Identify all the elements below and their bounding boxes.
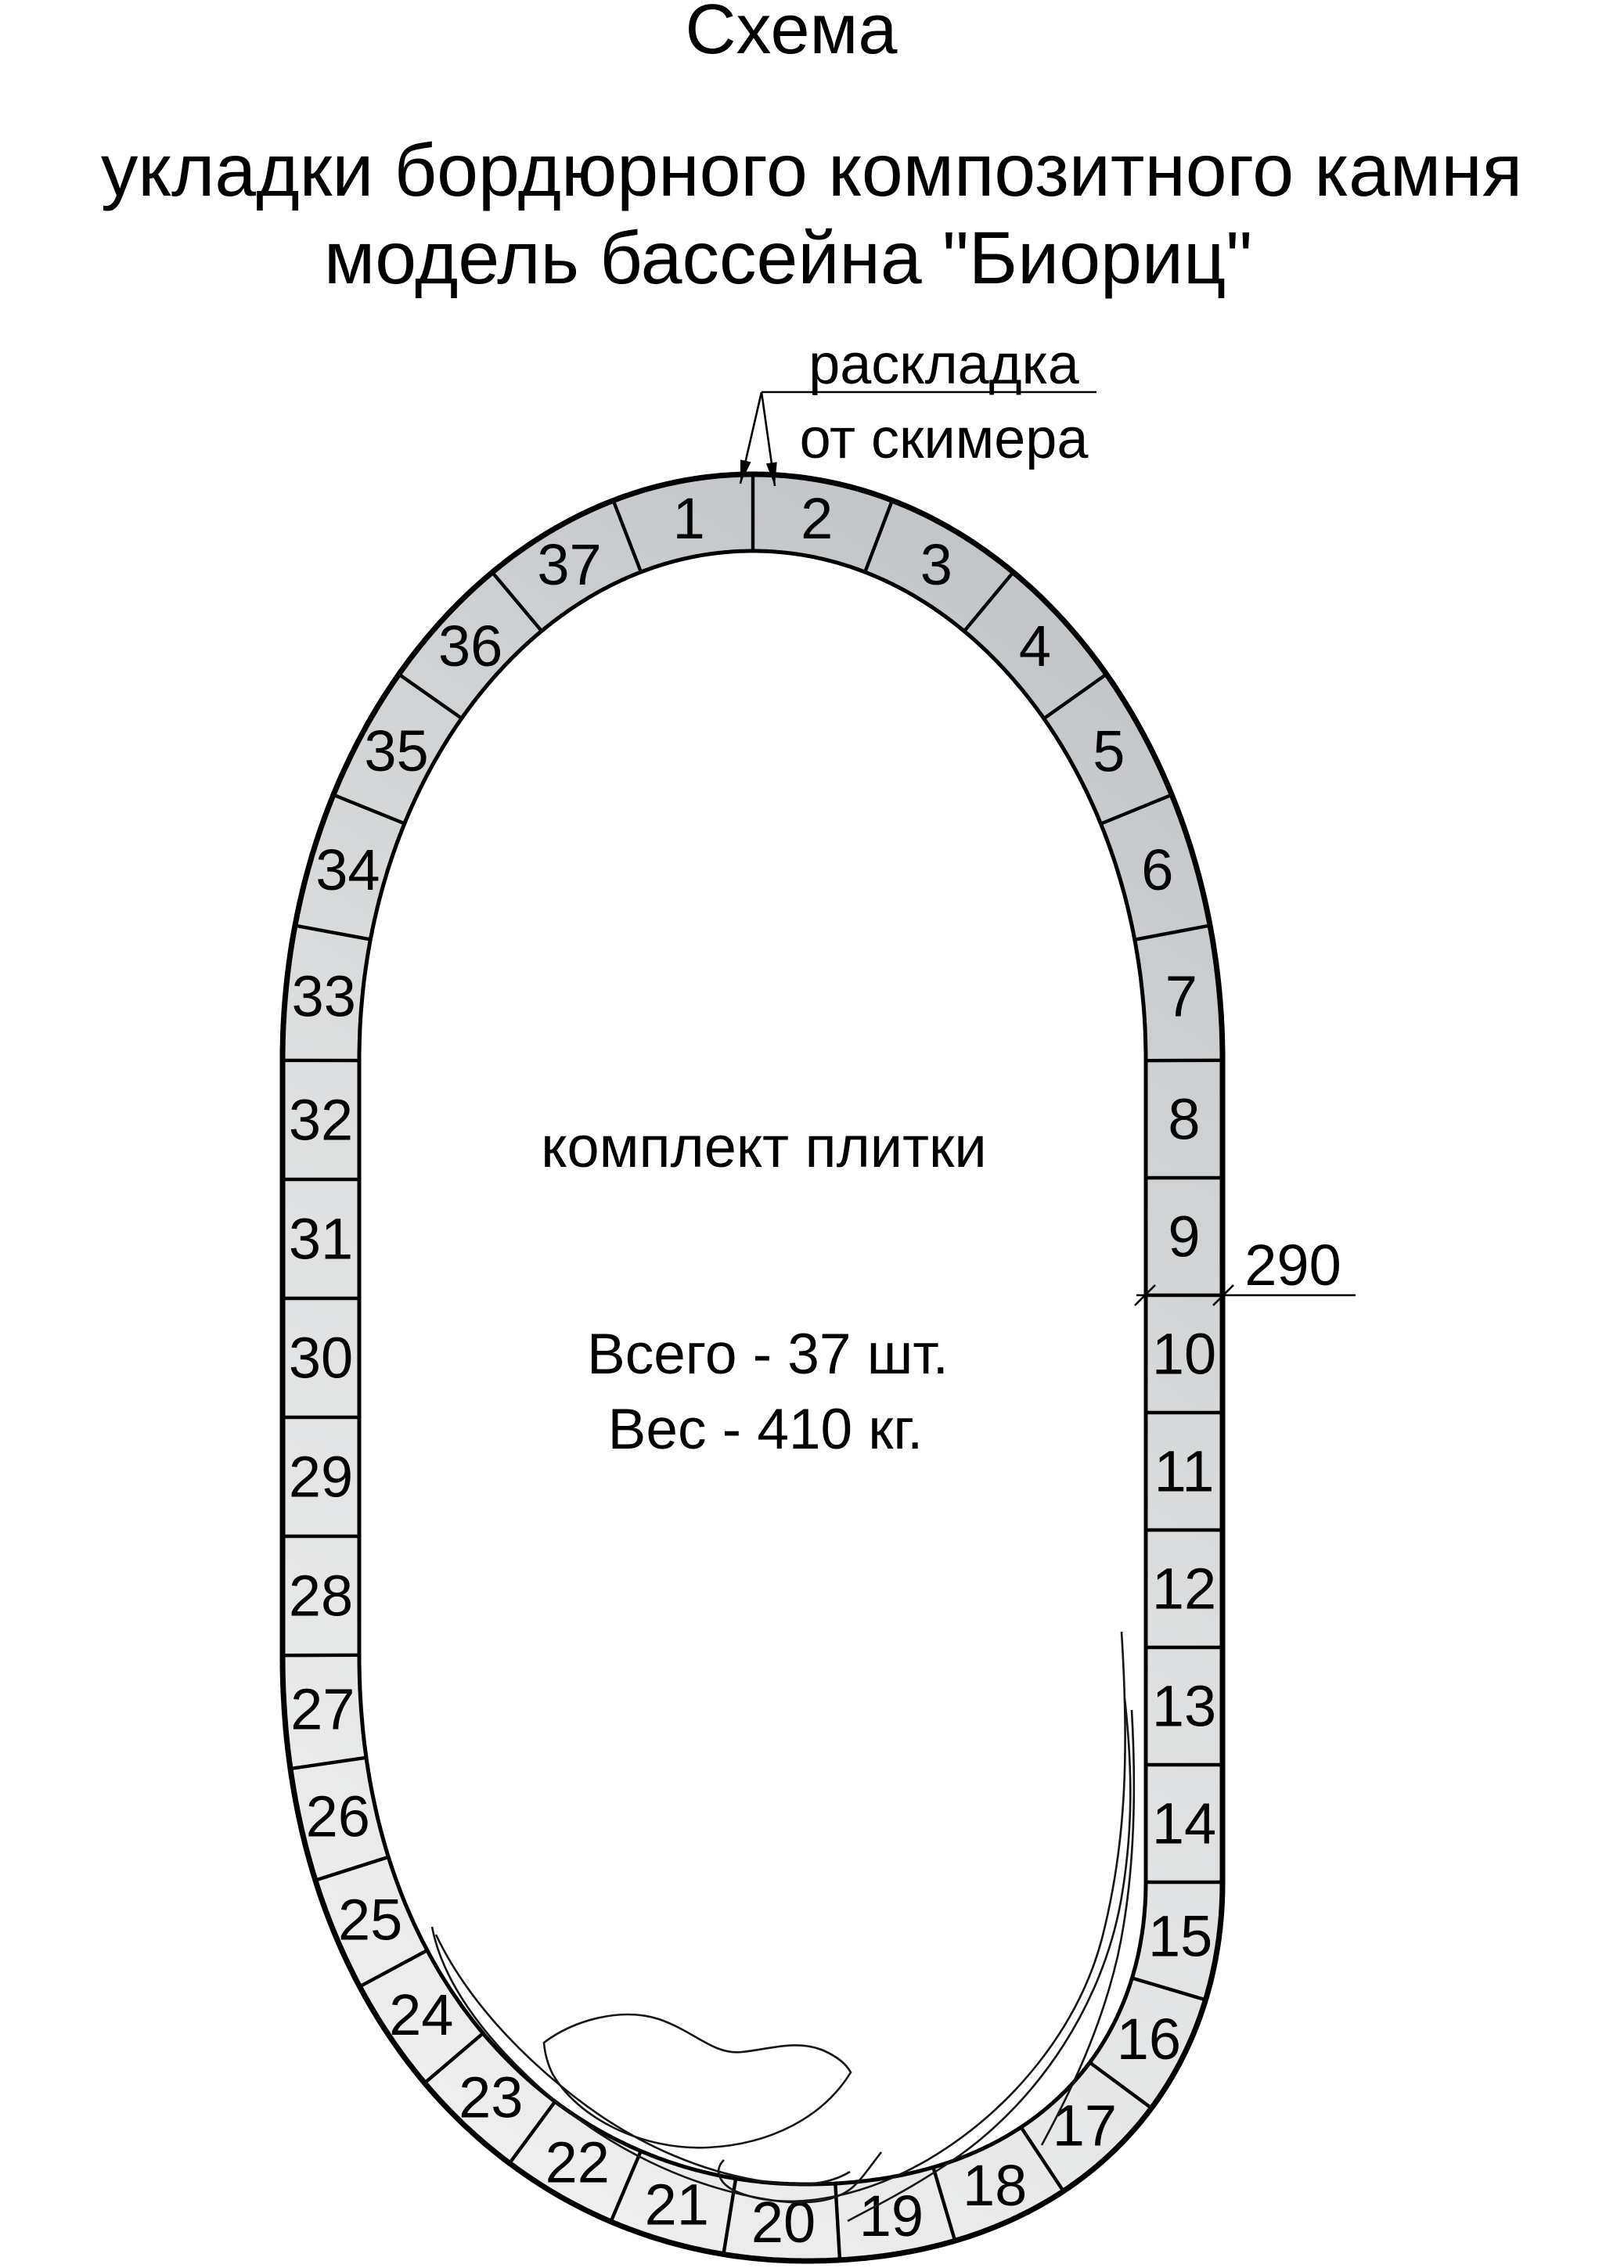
tile-number-15: 15 bbox=[1148, 1904, 1212, 1969]
tile-number-6: 6 bbox=[1141, 837, 1173, 902]
tile-number-34: 34 bbox=[315, 837, 380, 902]
tile-number-33: 33 bbox=[292, 963, 356, 1028]
center-note: комплект плитки Всего - 37 шт. Вес - 410… bbox=[541, 1114, 987, 1461]
tile-number-2: 2 bbox=[801, 486, 833, 551]
tile-number-23: 23 bbox=[459, 2065, 523, 2130]
skimmer-annotation: раскладка от скимера bbox=[740, 333, 1096, 486]
tile-number-5: 5 bbox=[1093, 718, 1125, 783]
center-note-line3: Вес - 410 кг. bbox=[608, 1398, 924, 1461]
tile-number-24: 24 bbox=[389, 1982, 453, 2047]
tile-number-25: 25 bbox=[338, 1887, 402, 1952]
skimmer-label-line1: раскладка bbox=[808, 333, 1080, 396]
tile-number-11: 11 bbox=[1154, 1439, 1215, 1504]
tile-number-7: 7 bbox=[1165, 963, 1197, 1028]
tile-number-12: 12 bbox=[1152, 1557, 1216, 1622]
tile-number-27: 27 bbox=[290, 1677, 355, 1742]
center-note-line1: комплект плитки bbox=[541, 1114, 987, 1179]
tile-number-16: 16 bbox=[1117, 2007, 1181, 2072]
tile-number-8: 8 bbox=[1168, 1087, 1200, 1152]
center-note-line2: Всего - 37 шт. bbox=[587, 1323, 949, 1386]
tile-number-10: 10 bbox=[1152, 1322, 1216, 1387]
tile-number-3: 3 bbox=[920, 532, 952, 597]
tile-number-13: 13 bbox=[1152, 1674, 1216, 1739]
dimension-value: 290 bbox=[1244, 1233, 1341, 1298]
tile-number-14: 14 bbox=[1152, 1791, 1216, 1856]
tile-number-17: 17 bbox=[1053, 2093, 1117, 2158]
skimmer-arrow-1 bbox=[740, 392, 762, 484]
tile-number-37: 37 bbox=[537, 532, 601, 597]
tile-number-30: 30 bbox=[289, 1326, 353, 1391]
tile-number-19: 19 bbox=[859, 2183, 924, 2248]
page-subtitle-1: укладки бордюрного композитного камня bbox=[101, 129, 1522, 212]
tile-number-32: 32 bbox=[289, 1088, 353, 1153]
tile-number-35: 35 bbox=[364, 718, 428, 783]
page-title: Схема bbox=[686, 0, 898, 69]
tile-number-36: 36 bbox=[438, 614, 502, 679]
tile-number-22: 22 bbox=[546, 2129, 610, 2194]
pool-tile-schema-diagram: 2345678910111213141516171819202122232425… bbox=[0, 0, 1624, 2268]
tile-number-26: 26 bbox=[306, 1784, 370, 1849]
tile-number-9: 9 bbox=[1168, 1204, 1200, 1269]
tile-number-29: 29 bbox=[289, 1445, 353, 1510]
skimmer-label-line2: от скимера bbox=[800, 408, 1089, 470]
tile-number-18: 18 bbox=[963, 2153, 1027, 2218]
tile-number-31: 31 bbox=[289, 1207, 353, 1272]
header: Схема укладки бордюрного композитного ка… bbox=[101, 0, 1522, 300]
tile-number-4: 4 bbox=[1019, 614, 1051, 679]
tile-number-28: 28 bbox=[289, 1564, 353, 1629]
tile-number-1: 1 bbox=[673, 486, 705, 551]
page-subtitle-2: модель бассейна "Биориц" bbox=[324, 217, 1252, 300]
